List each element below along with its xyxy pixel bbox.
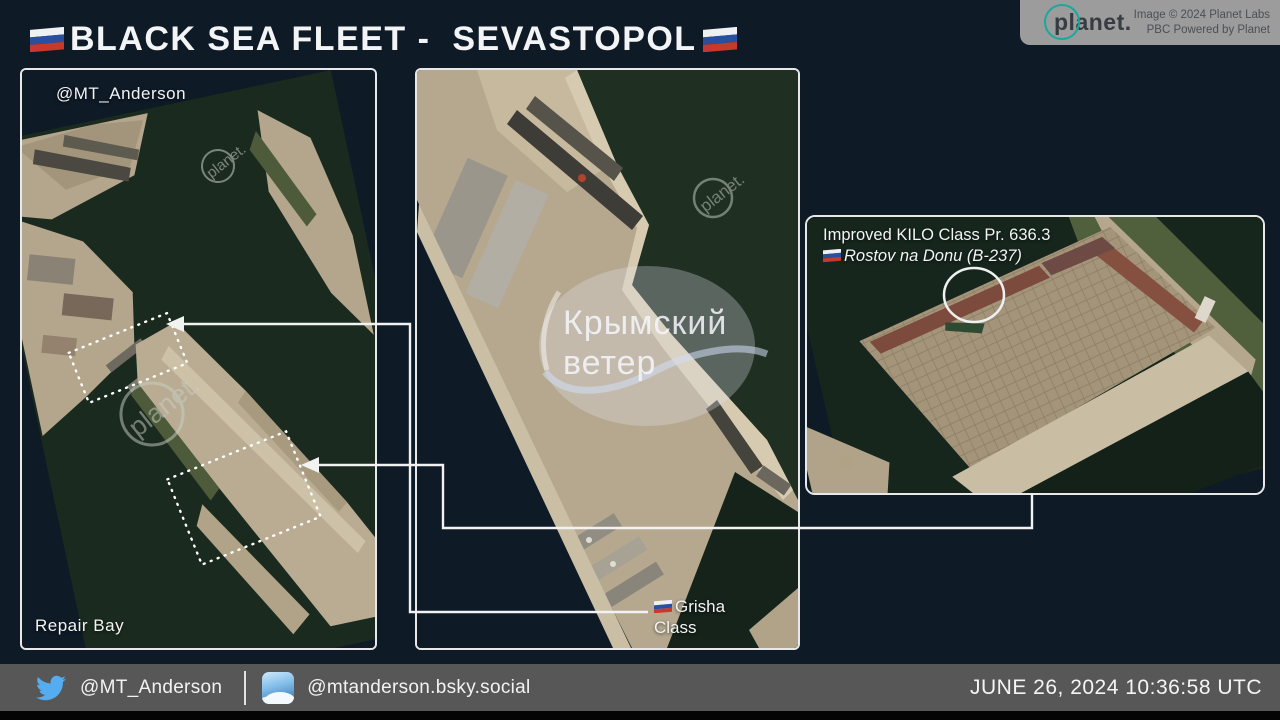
planet-logo: planet. [1054,9,1132,36]
repair-bay-caption: Repair Bay [35,616,124,636]
russian-flag-icon [654,600,672,613]
title-text: BLACK SEA FLEET - SEVASTOPOL [70,20,697,59]
infographic-canvas: BLACK SEA FLEET - SEVASTOPOL planet. Ima… [0,0,1280,720]
repair-bay-satellite-image: planet. planet. [22,70,375,648]
svg-text:ветер: ветер [563,344,656,382]
bottom-letterbox [0,711,1280,720]
svg-text:Крымский: Крымский [563,304,727,342]
russian-flag-icon [823,249,841,262]
bluesky-icon [262,672,294,704]
planet-credit-text: Image © 2024 Planet Labs PBC Powered by … [1134,8,1270,38]
capture-timestamp: JUNE 26, 2024 10:36:58 UTC [970,676,1262,700]
footer-bar: @MT_Anderson @mtanderson.bsky.social JUN… [0,664,1280,711]
satellite-panel-kilo-class: Improved KILO Class Pr. 636.3 Rostov na … [805,215,1265,495]
twitter-icon [36,673,66,703]
twitter-handle: @MT_Anderson [80,677,222,699]
russian-flag-icon [703,27,737,52]
bluesky-handle: @mtanderson.bsky.social [307,677,530,699]
footer-divider [244,671,246,705]
grisha-class-label: Grisha Class [654,596,725,639]
russian-flag-icon [30,27,64,52]
satellite-panel-shipyard: Крымский ветер planet. Grisha [415,68,800,650]
analyst-credit: @MT_Anderson [56,84,186,104]
page-title: BLACK SEA FLEET - SEVASTOPOL [30,20,737,59]
planet-logo-ring-icon [1044,4,1080,40]
shipyard-satellite-image: Крымский ветер planet. [417,70,798,648]
satellite-panel-repair-bay: planet. planet. @MT_Anderson Repair Bay [20,68,377,650]
kilo-class-label: Improved KILO Class Pr. 636.3 Rostov na … [823,225,1050,266]
planet-attribution-box: planet. Image © 2024 Planet Labs PBC Pow… [1020,0,1280,45]
